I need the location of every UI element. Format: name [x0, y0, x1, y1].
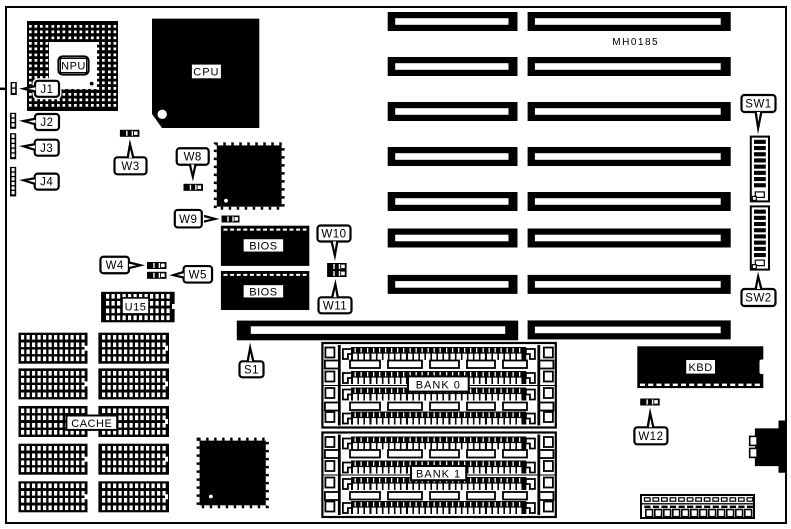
svg-text:KBD: KBD	[689, 362, 713, 374]
svg-text:J1: J1	[40, 84, 53, 96]
svg-text:J2: J2	[40, 117, 53, 129]
svg-text:BANK 1: BANK 1	[416, 469, 461, 481]
svg-text:W10: W10	[321, 229, 346, 241]
svg-text:SW1: SW1	[745, 99, 771, 111]
svg-text:W12: W12	[638, 431, 663, 443]
svg-text:BANK 0: BANK 0	[416, 380, 461, 392]
svg-text:U15: U15	[125, 302, 147, 314]
svg-text:MH0185: MH0185	[612, 37, 659, 48]
svg-text:W9: W9	[179, 214, 197, 226]
svg-text:W3: W3	[121, 161, 139, 173]
svg-text:CACHE: CACHE	[71, 418, 112, 430]
svg-text:J3: J3	[40, 143, 53, 155]
svg-text:W11: W11	[323, 300, 347, 312]
svg-text:J4: J4	[40, 177, 53, 189]
svg-text:W4: W4	[106, 260, 124, 272]
svg-text:BIOS: BIOS	[249, 287, 277, 299]
svg-text:NPU: NPU	[61, 60, 86, 72]
svg-text:W8: W8	[184, 152, 202, 164]
svg-text:CPU: CPU	[193, 67, 219, 79]
svg-text:S1: S1	[244, 364, 259, 376]
svg-text:W5: W5	[189, 269, 207, 281]
svg-text:SW2: SW2	[745, 293, 771, 305]
svg-text:BIOS: BIOS	[249, 241, 277, 253]
